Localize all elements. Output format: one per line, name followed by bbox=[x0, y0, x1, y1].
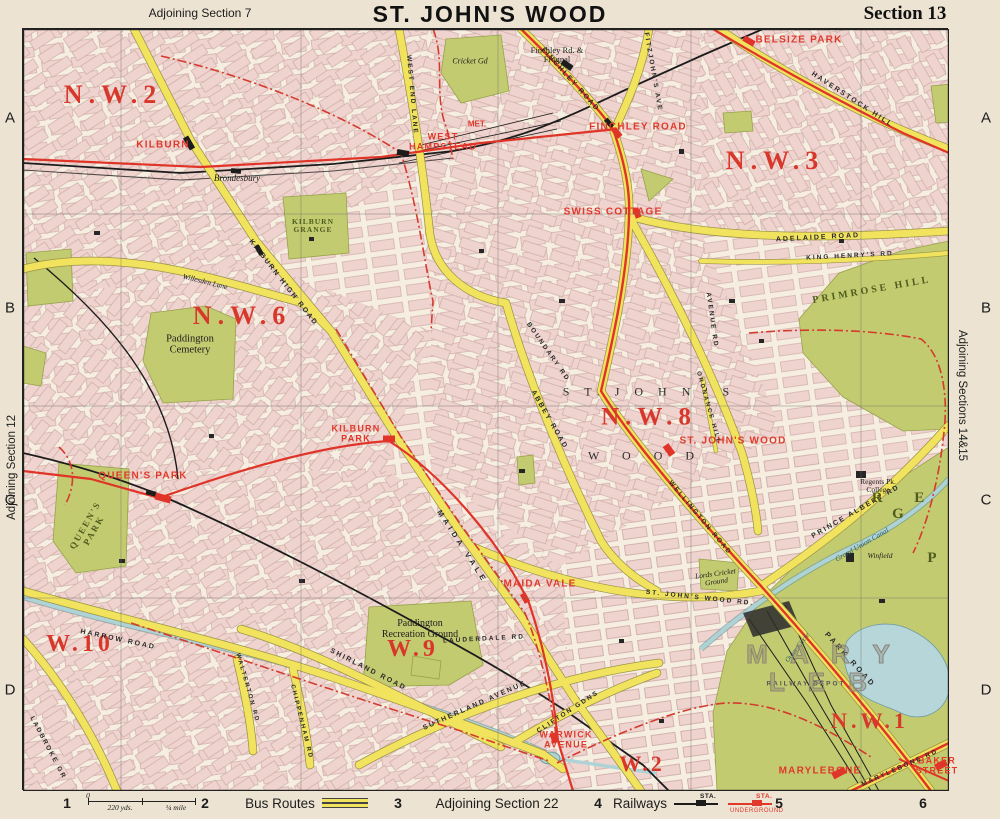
paddington-cemetery-area bbox=[143, 306, 236, 403]
grid-row-D-left: D bbox=[5, 682, 16, 699]
grid-col-1: 1 bbox=[63, 795, 71, 811]
adjoining-section-top: Adjoining Section 7 bbox=[149, 6, 252, 20]
railway-sta-label: STA. bbox=[700, 793, 716, 800]
bus-route-swatch bbox=[322, 798, 368, 808]
scale-mid: 220 yds. bbox=[108, 803, 133, 812]
grid-col-5: 5 bbox=[775, 795, 783, 811]
map-area bbox=[22, 28, 948, 790]
st-johns-church-green bbox=[699, 559, 739, 591]
parkhill-green bbox=[723, 111, 753, 133]
scale-zero: 0 bbox=[86, 791, 90, 800]
legend-bar: 0 220 yds. ¼ mile Bus Routes Adjoining S… bbox=[0, 790, 1000, 819]
grid-col-6: 6 bbox=[919, 795, 927, 811]
grid-col-4: 4 bbox=[594, 795, 602, 811]
kilburn-grange-park bbox=[283, 193, 349, 259]
grid-row-D-right: D bbox=[981, 682, 992, 699]
section-number: Section 13 bbox=[864, 3, 947, 25]
grid-row-A-right: A bbox=[981, 110, 991, 127]
brondesbury-green-1 bbox=[26, 249, 73, 306]
grid-col-2: 2 bbox=[201, 795, 209, 811]
grid-col-3: 3 bbox=[394, 795, 402, 811]
adjoining-section-right: Adjoining Sections 14&15 bbox=[956, 330, 968, 461]
grid-row-B-right: B bbox=[981, 300, 991, 317]
railway-symbol bbox=[674, 803, 718, 805]
adjoining-section-bottom: Adjoining Section 22 bbox=[435, 796, 558, 811]
underground-sta-label: STA. bbox=[756, 793, 772, 800]
grid-row-C-left: C bbox=[5, 492, 16, 509]
bus-routes-label: Bus Routes bbox=[245, 796, 315, 811]
map-canvas bbox=[23, 29, 949, 791]
grid-row-B-left: B bbox=[5, 300, 15, 317]
scale-end: ¼ mile bbox=[166, 803, 186, 812]
grid-row-A-left: A bbox=[5, 110, 15, 127]
grid-row-C-right: C bbox=[981, 492, 992, 509]
map-page: Adjoining Section 7 ST. JOHN'S WOOD Sect… bbox=[0, 0, 1000, 819]
railways-label: Railways bbox=[613, 796, 667, 811]
underground-symbol bbox=[728, 803, 772, 805]
page-title: ST. JOHN'S WOOD bbox=[373, 1, 608, 28]
